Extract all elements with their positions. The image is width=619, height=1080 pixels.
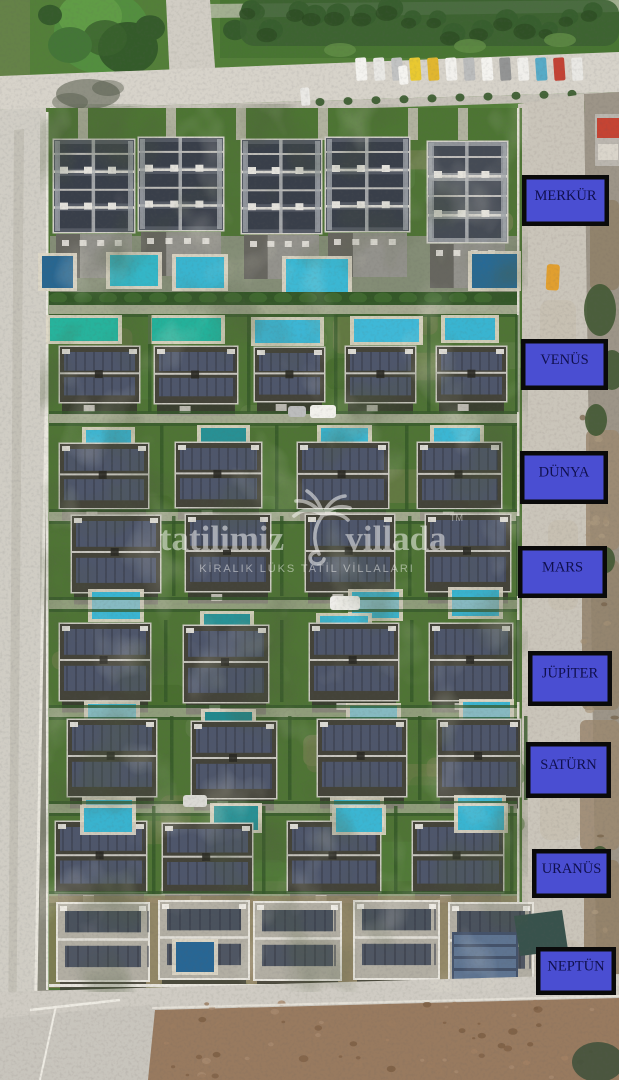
svg-text:JÜPİTER: JÜPİTER bbox=[542, 664, 599, 681]
svg-text:NEPTÜN: NEPTÜN bbox=[547, 958, 605, 975]
svg-text:VENÜS: VENÜS bbox=[540, 351, 588, 368]
svg-text:DÜNYA: DÜNYA bbox=[539, 464, 590, 481]
svg-text:SATÜRN: SATÜRN bbox=[540, 756, 597, 773]
svg-text:MERKÜR: MERKÜR bbox=[534, 187, 596, 204]
svg-text:URANÜS: URANÜS bbox=[542, 860, 602, 877]
svg-text:MARS: MARS bbox=[542, 559, 583, 575]
